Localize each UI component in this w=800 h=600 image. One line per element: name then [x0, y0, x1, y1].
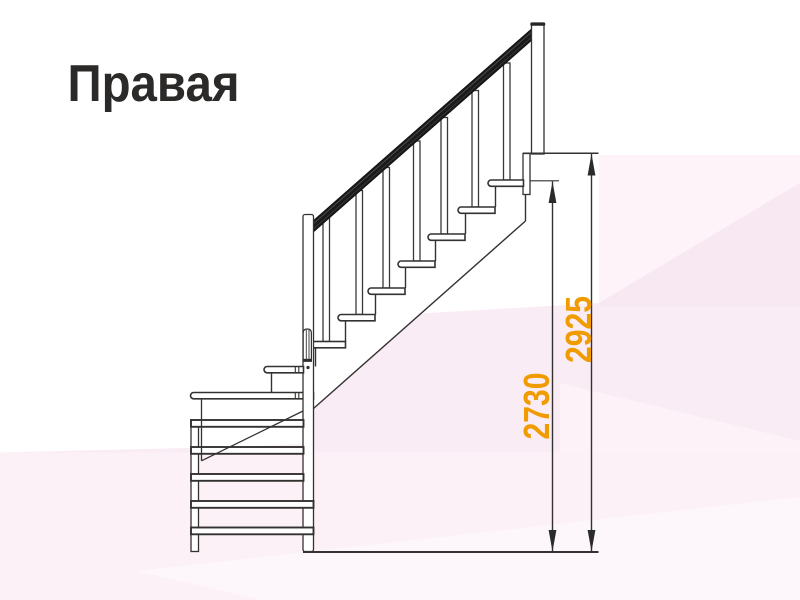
svg-text:Правая: Правая [68, 54, 240, 112]
svg-text:2925: 2925 [558, 296, 599, 363]
svg-text:2730: 2730 [516, 373, 557, 440]
